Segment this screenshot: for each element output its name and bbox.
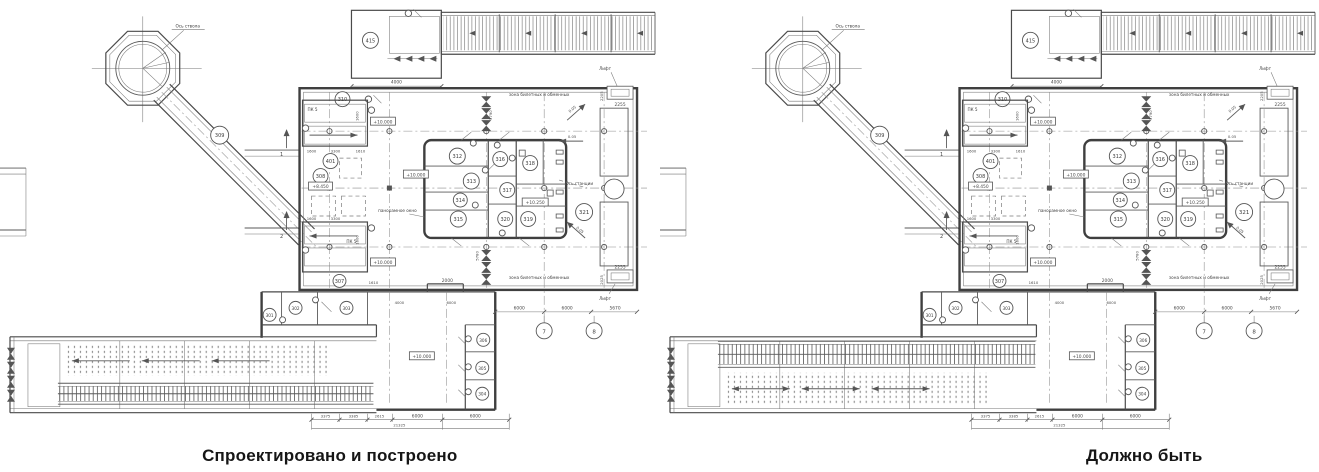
dim-2000: 2000 [442, 278, 453, 284]
dim-6000-b1: 6000 [412, 414, 423, 420]
dim-3385: 3385 [1008, 414, 1018, 419]
elev-stair-top: +10.000 [1033, 119, 1052, 125]
dim-3385: 3385 [349, 414, 359, 419]
zone-label-top: зона билетных и обменных [509, 92, 570, 97]
room-label-301: 301 [925, 313, 933, 318]
dim-1600-va: 1600 [354, 111, 359, 121]
room-label-309: 309 [874, 133, 884, 139]
dim-4000-conc: 4000 [395, 300, 405, 305]
slope-arrow-up: 0.05 [567, 104, 585, 120]
room-label-309: 309 [215, 133, 225, 139]
room-label-305: 305 [1138, 366, 1146, 371]
dim-5780: 5780 [474, 251, 479, 261]
inclined-corridor: 309 1 2 [0, 84, 318, 248]
dim-1600-va: 1600 [1014, 111, 1019, 121]
room-label-313: 313 [1126, 179, 1136, 185]
room-label-308: 308 [316, 174, 326, 180]
dim-1600a: 1600 [966, 149, 976, 154]
room-label-302: 302 [951, 306, 959, 311]
dim-1610b: 1610 [369, 280, 379, 285]
svg-text:0.05: 0.05 [1227, 134, 1236, 139]
elev-stair-bottom: +10.000 [373, 260, 392, 266]
room-label-312: 312 [453, 154, 463, 160]
dim-2255-top: 2255 [1274, 102, 1285, 108]
lift-label-bottom: Лифт [1259, 296, 1271, 301]
room-label-415: 415 [1025, 38, 1035, 44]
room-label-303: 303 [342, 306, 350, 311]
elev-10250: +10.250 [526, 200, 545, 206]
dim-2025: 2025 [599, 275, 604, 285]
grid-bubble-8: 8 [592, 329, 596, 335]
dim-2025: 2025 [1259, 275, 1264, 285]
room-label-303: 303 [1002, 306, 1010, 311]
dim-2000: 2000 [1101, 278, 1112, 284]
slope-arrow-mid: 0.05 [1219, 134, 1243, 143]
room-label-314: 314 [456, 198, 466, 204]
dim-3300b: 3300 [990, 216, 1000, 221]
stair-mark-a: ПК 5 [967, 107, 977, 112]
station-floor-plan: Ось ствола 309 1 2 415 [660, 0, 1319, 446]
svg-text:1: 1 [280, 152, 283, 158]
dim-21325: 21325 [1053, 423, 1066, 428]
dim-3300b: 3300 [331, 216, 341, 221]
zone-label-bottom: зона билетных и обменных [509, 275, 570, 280]
right-dimension-row: 6000 6000 5670 7 8 [493, 305, 639, 338]
dim-6000-conc: 6000 [447, 300, 457, 305]
dim-4000-top: 4000 [391, 80, 402, 86]
dim-1610a: 1610 [1015, 149, 1025, 154]
right-zone: зона билетных и обменных зона билетных и… [1168, 66, 1292, 301]
room-label-308: 308 [975, 174, 985, 180]
dim-6000-r2: 6000 [1221, 305, 1232, 311]
section-mark-1: 1 [939, 129, 949, 158]
grid-bubble-7: 7 [542, 329, 546, 335]
dim-2615: 2615 [1034, 414, 1044, 419]
dim-6000-b2: 6000 [1129, 414, 1140, 420]
dim-21325: 21325 [393, 423, 406, 428]
shaft-axis-label: Ось ствола [176, 23, 201, 28]
dim-5670: 5670 [609, 305, 620, 311]
lower-gallery [7, 337, 376, 413]
room-label-401: 401 [326, 159, 336, 165]
dim-2615: 2615 [375, 414, 385, 419]
room-label-317: 317 [1162, 188, 1172, 194]
room-label-307: 307 [335, 279, 345, 285]
section-mark-1: 1 [280, 129, 290, 158]
room-label-316: 316 [495, 157, 505, 163]
room-label-319: 319 [523, 217, 533, 223]
svg-text:2: 2 [280, 234, 283, 240]
dim-3300a: 3300 [331, 149, 341, 154]
top-gallery-block: 415 4000 [1009, 9, 1315, 88]
comparison-figure: Ось ствола 309 1 2 415 [0, 0, 1319, 472]
left-stair-blocks: 310 ПК 5 1600 +10.000 1600 3300 1610 401… [962, 92, 1055, 288]
dim-1600-vb: 1600 [1014, 235, 1019, 245]
central-room-cluster: 312 313 314 315 316 317 320 318 319 +10.… [378, 132, 566, 246]
slope-arrow-down: 0.05 [1227, 222, 1245, 238]
room-label-313: 313 [467, 179, 477, 185]
dim-3375: 3375 [980, 414, 990, 419]
dim-6000-r2: 6000 [562, 305, 573, 311]
main-hall-shell [300, 88, 637, 290]
lift-label-top: Лифт [1259, 66, 1271, 71]
svg-text:2: 2 [939, 234, 942, 240]
dim-5670: 5670 [1269, 305, 1280, 311]
zone-label-top: зона билетных и обменных [1168, 92, 1229, 97]
central-room-cluster: 312 313 314 315 316 317 320 318 319 +10.… [1038, 132, 1226, 246]
dim-1610a: 1610 [356, 149, 366, 154]
gallery-built-layout [58, 345, 374, 404]
room-label-319: 319 [1183, 217, 1193, 223]
top-gallery-block: 415 4000 [349, 9, 655, 88]
room-label-304: 304 [1138, 392, 1146, 397]
room-label-321: 321 [1238, 210, 1248, 216]
dim-5780: 5780 [1134, 251, 1139, 261]
caption-should-be: Должно быть [660, 446, 1319, 470]
room-label-320: 320 [500, 217, 510, 223]
panoramic-window-label: панорамное окно [378, 208, 417, 213]
dim-1610b: 1610 [1028, 280, 1038, 285]
lift-label-bottom: Лифт [599, 296, 611, 301]
floor-plan-should-be: Ось ствола 309 1 2 415 [660, 0, 1319, 446]
station-axis-label: Ось станции [1225, 181, 1253, 186]
dim-3375: 3375 [321, 414, 331, 419]
elev-8450: +8.450 [972, 184, 988, 190]
dim-1600b: 1600 [966, 216, 976, 221]
dim-3300a: 3300 [990, 149, 1000, 154]
room-label-312: 312 [1112, 154, 1122, 160]
station-floor-plan: Ось ствола 309 1 2 415 [0, 0, 659, 446]
panel-should-be: Ось ствола 309 1 2 415 [660, 0, 1319, 472]
elev-main: +10.000 [1066, 172, 1085, 178]
room-label-304: 304 [478, 392, 486, 397]
dim-1600-vb: 1600 [354, 235, 359, 245]
room-label-306: 306 [1139, 338, 1147, 343]
station-axis-label: Ось станции [565, 181, 593, 186]
room-label-321: 321 [579, 210, 589, 216]
lift-label-top: Лифт [599, 66, 611, 71]
main-hall-shell [959, 88, 1296, 290]
dim-6000-b2: 6000 [470, 414, 481, 420]
bottom-dimension-rows: 3375 3385 2615 6000 6000 21325 [969, 414, 1171, 430]
dim-2255-top: 2255 [614, 102, 625, 108]
stair-direction-arrows-bottom [481, 250, 491, 285]
dim-1600b: 1600 [307, 216, 317, 221]
room-label-305: 305 [478, 366, 486, 371]
dim-4000-top: 4000 [1050, 80, 1061, 86]
stair-mark-a: ПК 5 [307, 107, 317, 112]
shaft-tower: Ось ствола [751, 16, 864, 122]
dim-1600a: 1600 [307, 149, 317, 154]
right-zone: зона билетных и обменных зона билетных и… [509, 66, 633, 301]
zone-label-bottom: зона билетных и обменных [1168, 275, 1229, 280]
dim-2205: 2205 [599, 91, 604, 101]
room-label-315: 315 [1113, 217, 1123, 223]
elev-main: +10.000 [406, 172, 425, 178]
panel-as-built: Ось ствола 309 1 2 415 [0, 0, 660, 472]
gallery-corrected-layout [717, 341, 1035, 403]
grid-bubble-7: 7 [1202, 329, 1206, 335]
elev-stair-top: +10.000 [373, 119, 392, 125]
room-label-302: 302 [292, 306, 300, 311]
elev-concourse: +10.000 [1072, 354, 1091, 360]
room-label-315: 315 [454, 217, 464, 223]
slope-arrow-mid: 0.05 [559, 134, 583, 143]
bottom-dimension-rows: 3375 3385 2615 6000 6000 21325 [310, 414, 512, 430]
left-stair-blocks: 310 ПК 5 1600 +10.000 1600 3300 1610 401… [302, 92, 395, 288]
elev-8450: +8.450 [312, 184, 328, 190]
room-label-316: 316 [1155, 157, 1165, 163]
panoramic-window-label: панорамное окно [1038, 208, 1077, 213]
caption-as-built: Спроектировано и построено [0, 446, 660, 470]
svg-text:1: 1 [939, 152, 942, 158]
dim-2205: 2205 [1259, 91, 1264, 101]
dim-6000-r1: 6000 [1173, 305, 1184, 311]
room-label-314: 314 [1115, 198, 1125, 204]
room-label-317: 317 [502, 188, 512, 194]
dim-6000-r1: 6000 [514, 305, 525, 311]
room-label-301: 301 [266, 313, 274, 318]
floor-plan-as-built: Ось ствола 309 1 2 415 [0, 0, 659, 446]
lower-gallery [666, 337, 1035, 413]
room-label-318: 318 [525, 161, 535, 167]
shaft-tower: Ось ствола [92, 16, 205, 122]
slope-arrow-up: 0.05 [1227, 104, 1245, 120]
slope-arrow-down: 0.05 [567, 222, 585, 238]
dim-5790: 5790 [1148, 110, 1153, 120]
room-label-320: 320 [1160, 217, 1170, 223]
right-dimension-row: 6000 6000 5670 7 8 [1153, 305, 1299, 338]
room-label-415: 415 [366, 38, 376, 44]
elev-stair-bottom: +10.000 [1033, 260, 1052, 266]
elev-concourse: +10.000 [412, 354, 431, 360]
room-label-307: 307 [994, 279, 1004, 285]
svg-text:0.05: 0.05 [568, 134, 577, 139]
dim-5790: 5790 [488, 110, 493, 120]
grid-bubble-8: 8 [1252, 329, 1256, 335]
room-label-318: 318 [1185, 161, 1195, 167]
dim-6000-b1: 6000 [1071, 414, 1082, 420]
room-label-401: 401 [985, 159, 995, 165]
inclined-corridor: 309 1 2 [660, 84, 978, 248]
dim-4000-conc: 4000 [1054, 300, 1064, 305]
room-label-306: 306 [479, 338, 487, 343]
elev-10250: +10.250 [1185, 200, 1204, 206]
dim-6000-conc: 6000 [1106, 300, 1116, 305]
shaft-axis-label: Ось ствола [835, 23, 860, 28]
